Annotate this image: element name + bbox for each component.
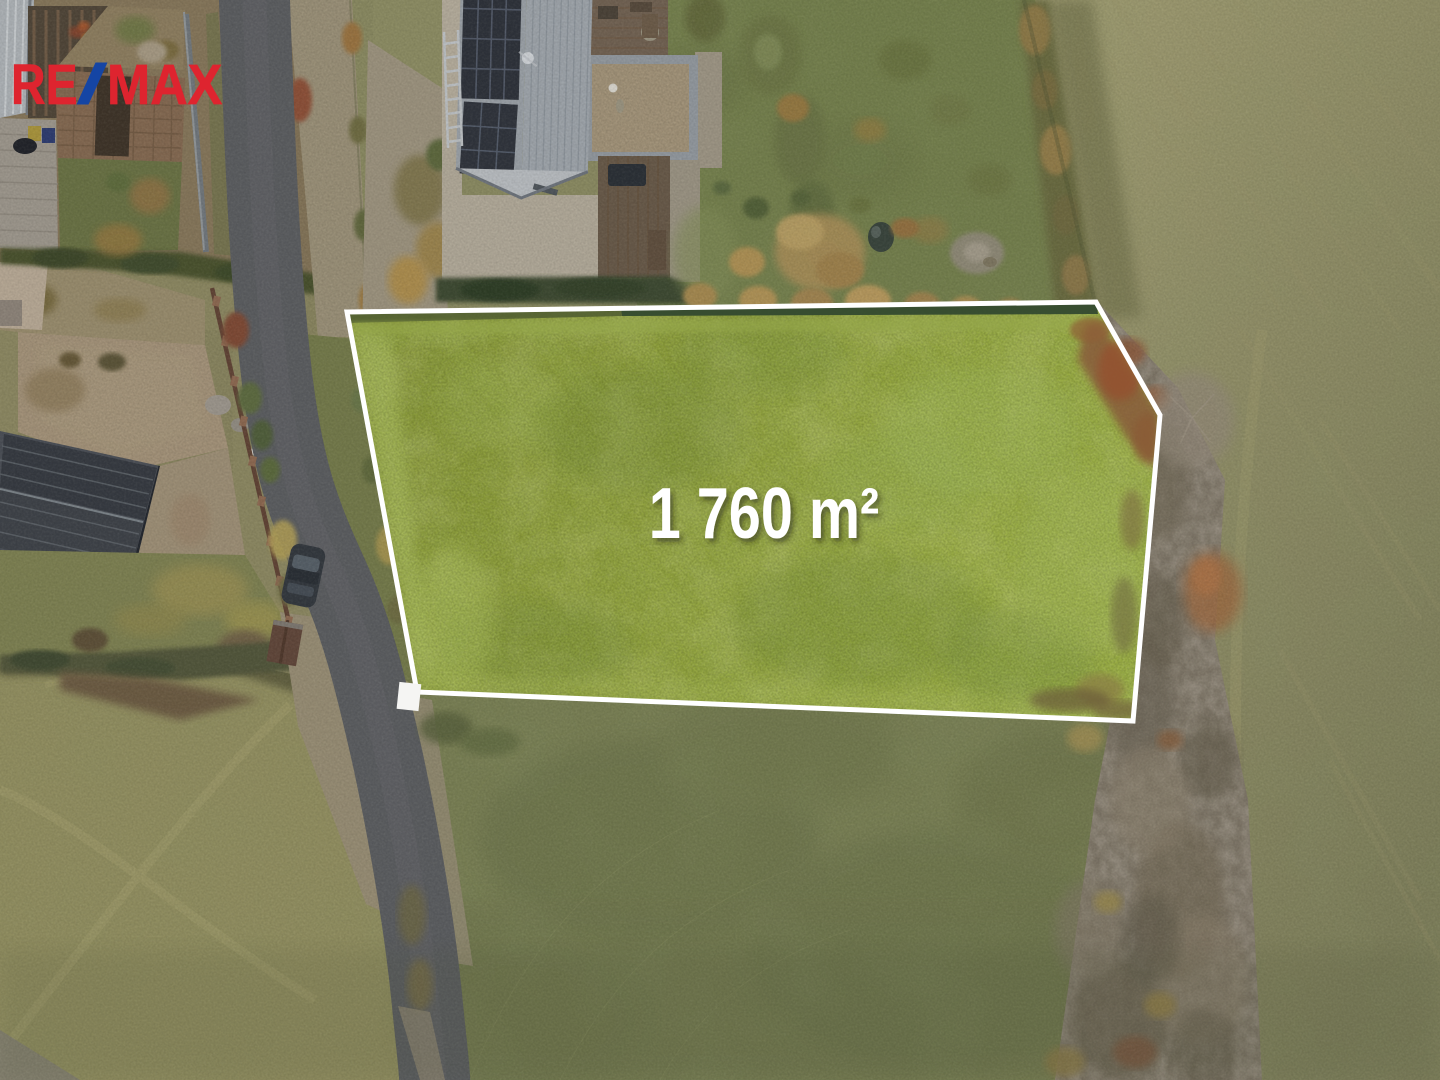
svg-text:1 760 m²: 1 760 m² [649, 473, 880, 554]
svg-text:RE: RE [11, 53, 78, 117]
svg-text:MAX: MAX [107, 53, 222, 117]
